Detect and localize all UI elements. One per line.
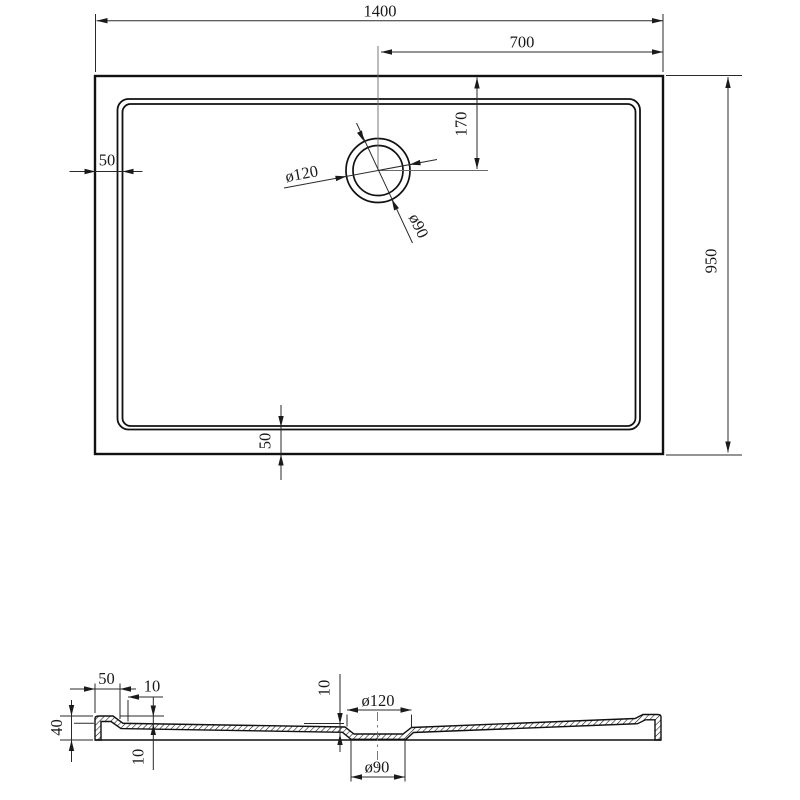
dim-arrowhead	[120, 686, 131, 691]
dim-arrowhead	[725, 77, 730, 88]
dim-arrowhead	[392, 199, 399, 210]
dim-arrowhead	[151, 706, 156, 717]
dim-rim-bottom-label: 50	[256, 433, 275, 450]
dim-arrowhead	[335, 176, 346, 181]
section-rim-step-label: 10	[144, 677, 161, 696]
dim-arrowhead	[381, 49, 392, 54]
dim-arrowhead	[410, 160, 421, 165]
top-view: 1400 700 170 950 50 50 ø120 ø90	[70, 2, 743, 481]
dimension-arrowheads	[69, 18, 731, 780]
dim-arrowhead	[123, 169, 134, 174]
dim-drain-from-top-label: 170	[452, 112, 471, 137]
dim-drain-offset-label: 700	[510, 33, 535, 52]
dim-arrowhead	[474, 78, 479, 89]
tray-section-shell	[95, 715, 661, 741]
dim-arrowhead	[278, 455, 283, 466]
dim-arrowhead	[337, 713, 342, 724]
dim-overall-width-label: 1400	[364, 2, 397, 21]
basin-edge-inner	[123, 104, 636, 426]
basin-edge-outer	[118, 99, 641, 430]
top-view-dimension-lines	[70, 14, 743, 480]
dim-arrowhead	[351, 774, 362, 779]
section-view: 50 10 40 10 10 ø120 ø90	[47, 669, 661, 782]
drawing-sheet: 1400 700 170 950 50 50 ø120 ø90	[0, 0, 800, 800]
dim-arrowhead	[128, 694, 139, 699]
dim-arrowhead	[347, 707, 358, 712]
dim-arrowhead	[652, 18, 663, 23]
dim-arrowhead	[84, 686, 95, 691]
dim-arrowhead	[725, 442, 730, 453]
dim-arrowhead	[652, 49, 663, 54]
tray-outer-edge	[95, 76, 663, 454]
dim-rim-left-label: 50	[99, 151, 116, 170]
dim-arrowhead	[97, 18, 108, 23]
section-total-height-label: 40	[47, 719, 66, 736]
section-recess-depth-label: 10	[315, 680, 334, 697]
technical-drawing: 1400 700 170 950 50 50 ø120 ø90	[0, 0, 800, 800]
section-inner-depth-label: 10	[129, 749, 148, 766]
section-rim-width-label: 50	[98, 669, 115, 688]
dim-arrowhead	[69, 705, 74, 716]
dim-overall-depth-label: 950	[702, 249, 721, 274]
dim-arrowhead	[69, 740, 74, 751]
dim-arrowhead	[401, 707, 412, 712]
section-drain-outer-diameter-label: ø120	[362, 691, 395, 710]
dim-arrowhead	[474, 158, 479, 169]
dim-arrowhead	[394, 774, 405, 779]
section-drain-inner-diameter-label: ø90	[365, 758, 390, 777]
